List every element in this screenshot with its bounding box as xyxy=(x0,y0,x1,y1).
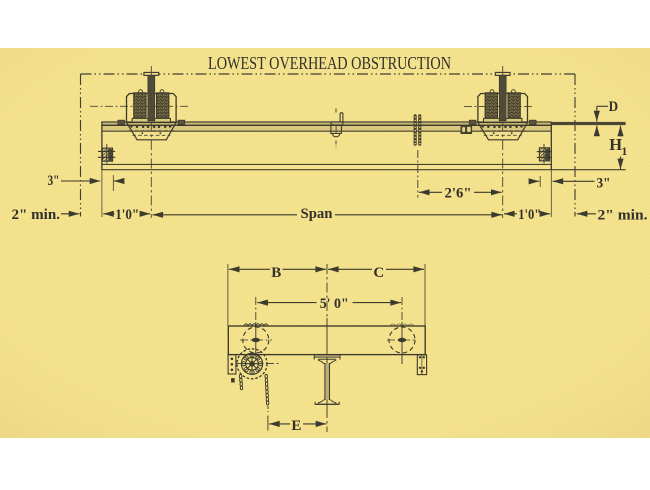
svg-text:1'0": 1'0" xyxy=(518,207,541,223)
svg-text:C: C xyxy=(373,265,384,281)
svg-text:3": 3" xyxy=(48,173,60,189)
svg-text:2'6": 2'6" xyxy=(445,185,472,201)
svg-text:3": 3" xyxy=(597,176,611,192)
svg-text:H: H xyxy=(609,135,622,154)
svg-text:B: B xyxy=(271,265,281,281)
svg-text:D: D xyxy=(609,99,619,115)
svg-text:1'0": 1'0" xyxy=(115,207,139,223)
svg-text:Span: Span xyxy=(301,206,334,222)
svg-text:1: 1 xyxy=(621,144,627,158)
svg-text:5' 0": 5' 0" xyxy=(320,296,349,312)
svg-text:2" min.: 2" min. xyxy=(12,207,61,223)
svg-text:LOWEST OVERHEAD OBSTRUCTION: LOWEST OVERHEAD OBSTRUCTION xyxy=(208,53,451,73)
svg-text:2" min.: 2" min. xyxy=(598,207,648,223)
svg-text:E: E xyxy=(291,418,301,434)
